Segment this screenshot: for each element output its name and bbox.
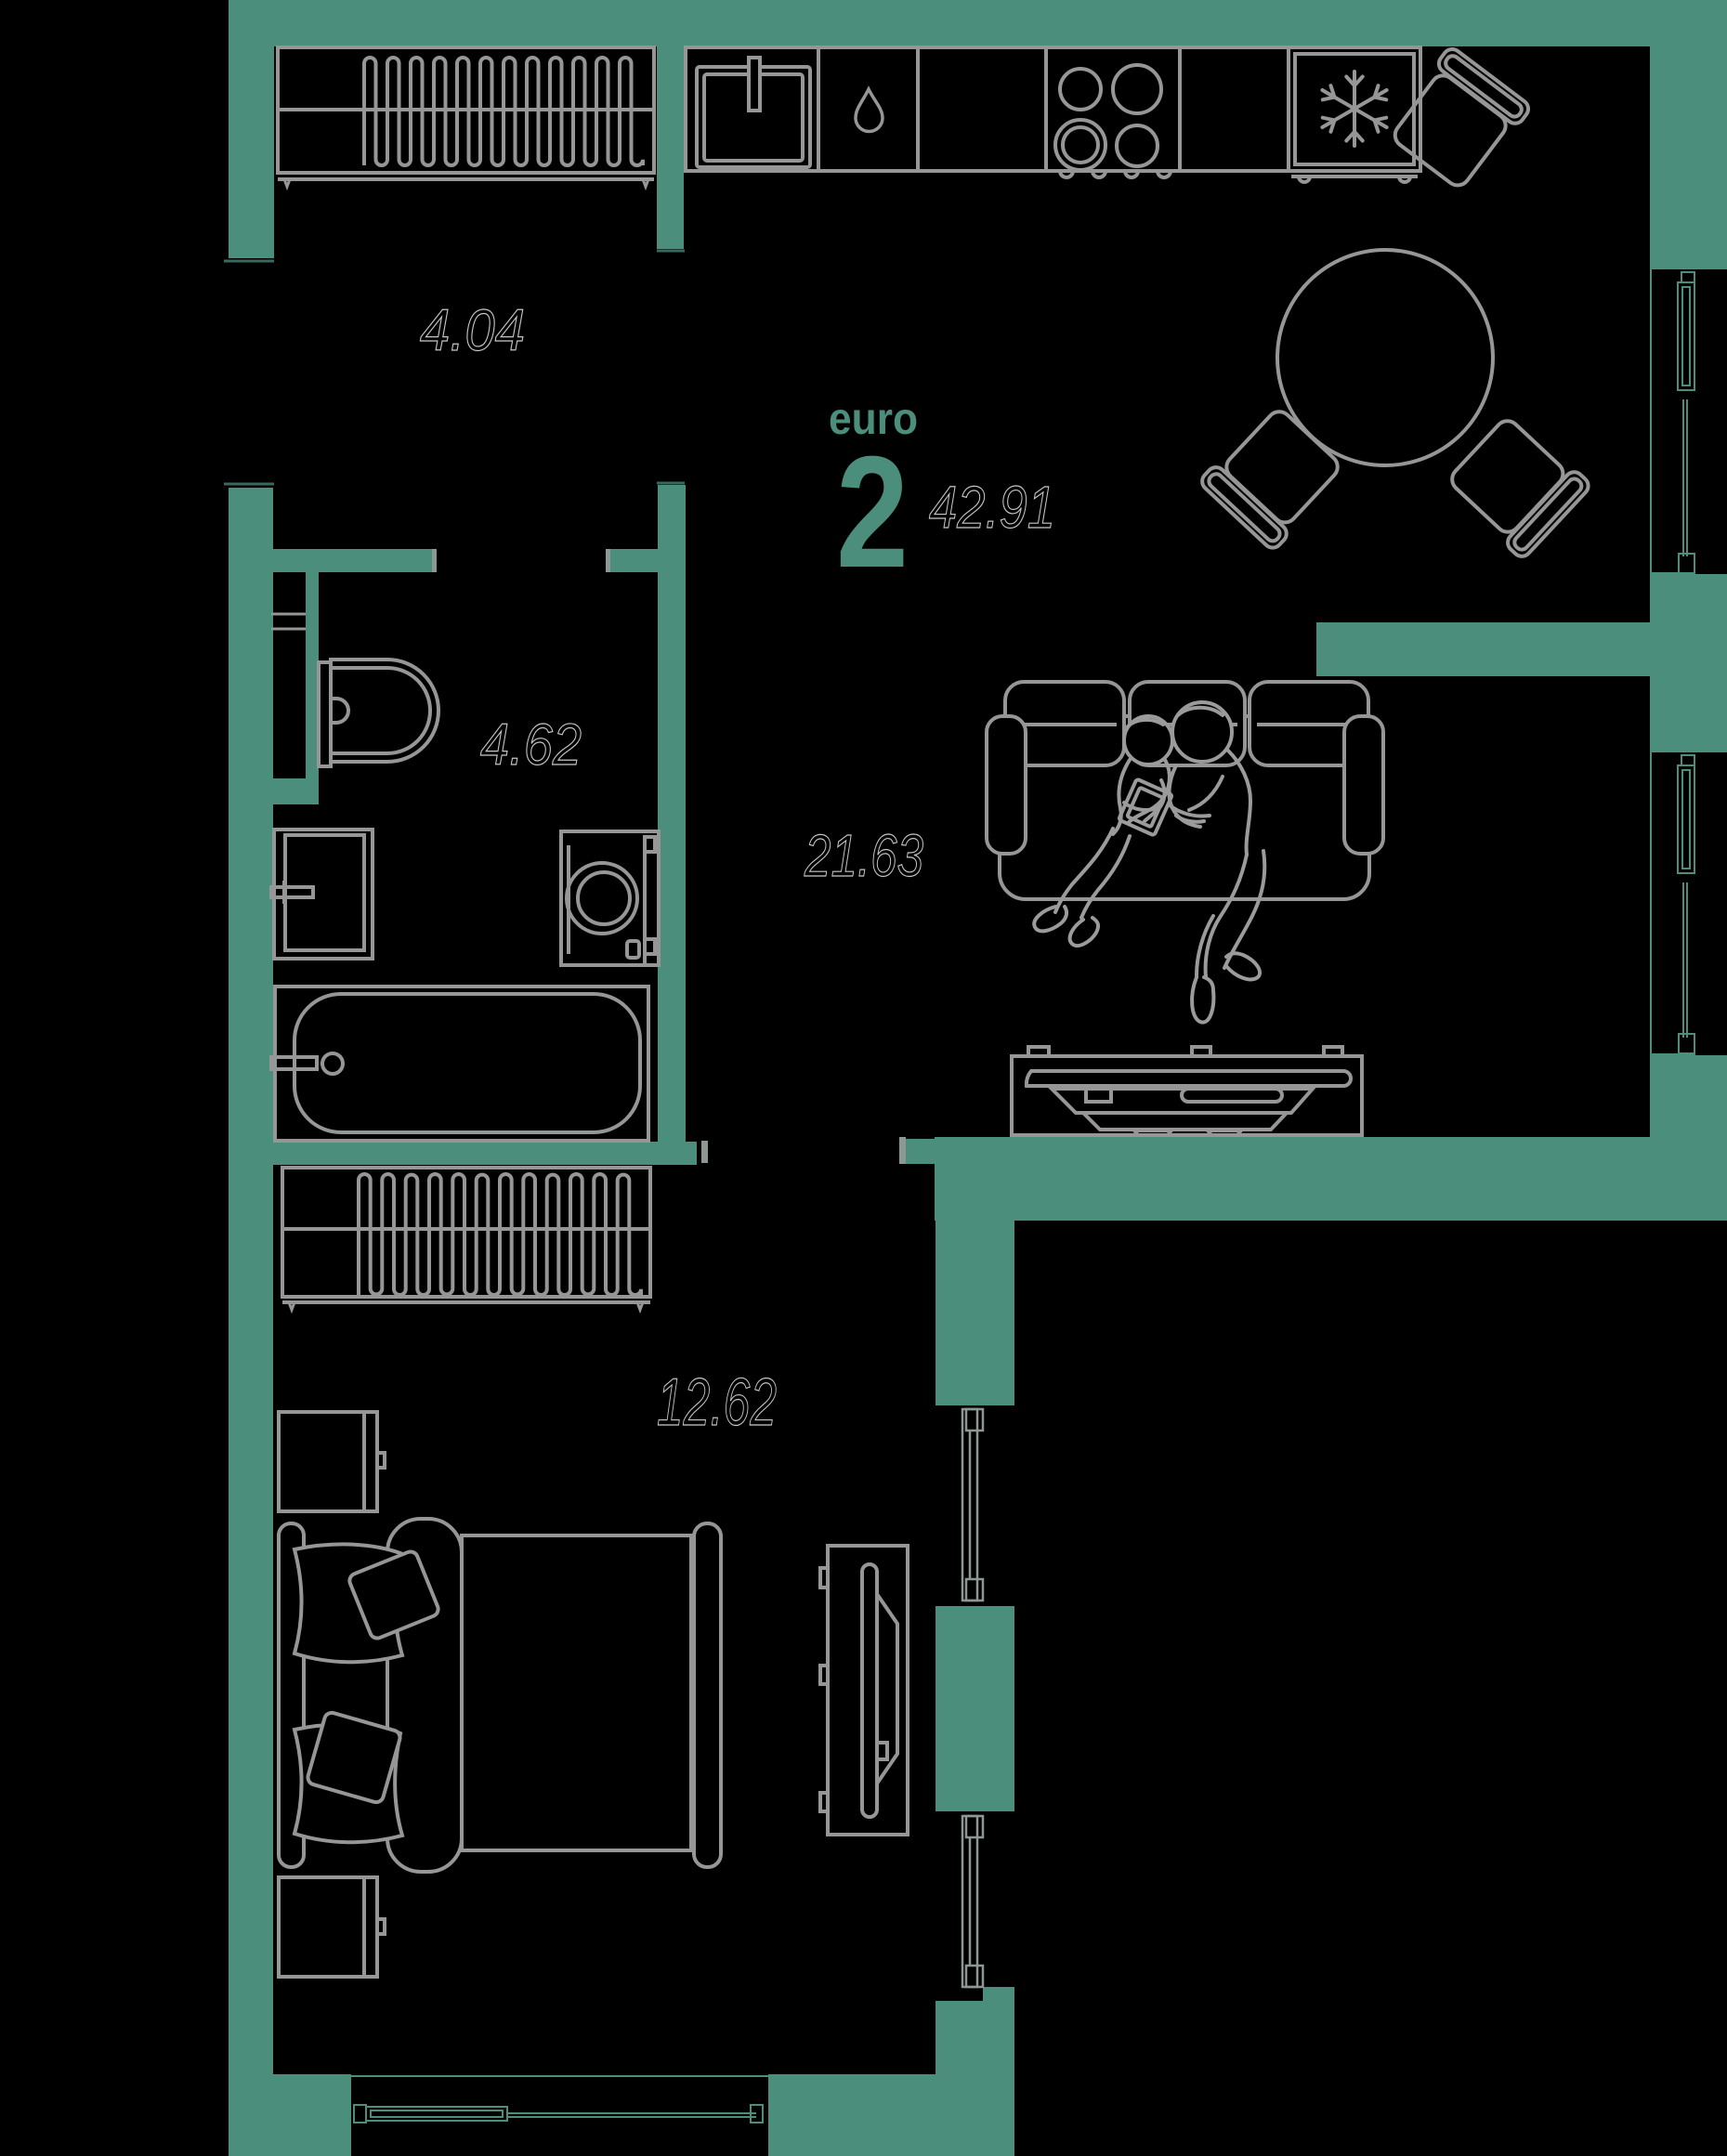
- svg-text:12.62: 12.62: [657, 1365, 777, 1440]
- svg-text:21.63: 21.63: [804, 822, 923, 889]
- svg-text:42.91: 42.91: [929, 474, 1055, 541]
- svg-text:2: 2: [836, 424, 909, 601]
- svg-text:4.04: 4.04: [420, 298, 525, 363]
- svg-text:4.62: 4.62: [480, 712, 582, 777]
